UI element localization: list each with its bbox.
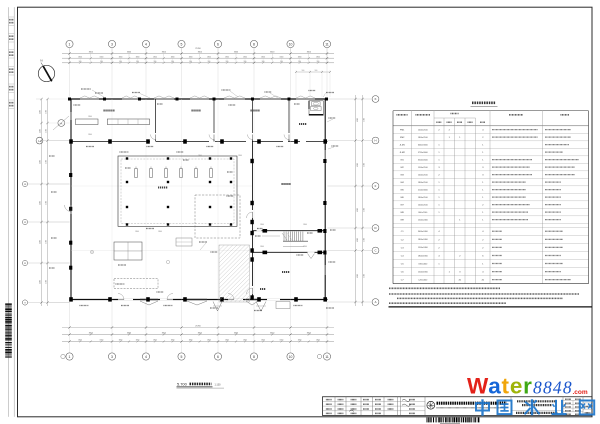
svg-text:1800x2100: 1800x2100	[418, 137, 429, 139]
svg-text:3600: 3600	[234, 52, 238, 54]
svg-text:1800: 1800	[207, 340, 211, 342]
svg-text:900: 900	[262, 61, 265, 63]
svg-text:3600: 3600	[198, 333, 202, 335]
svg-text:10: 10	[289, 355, 293, 359]
svg-text:5: 5	[181, 42, 183, 46]
svg-text:1800: 1800	[261, 56, 265, 58]
svg-text:A: A	[375, 300, 377, 304]
svg-text:1800: 1800	[88, 116, 92, 118]
svg-text:1800x2100: 1800x2100	[418, 197, 429, 199]
svg-text:1800: 1800	[78, 340, 82, 342]
svg-text:3600: 3600	[127, 52, 131, 54]
svg-text:1800: 1800	[260, 246, 264, 248]
svg-text:25700: 25700	[195, 326, 201, 328]
svg-text:3600: 3600	[89, 333, 93, 335]
svg-text:1800: 1800	[225, 56, 229, 58]
svg-text:2100: 2100	[45, 280, 47, 284]
svg-text:4: 4	[145, 42, 147, 46]
svg-text:2100: 2100	[45, 129, 47, 133]
svg-text:5: 5	[181, 355, 183, 359]
svg-text:4200: 4200	[39, 129, 41, 133]
svg-text:3600: 3600	[198, 52, 202, 54]
svg-text:3600: 3600	[162, 52, 166, 54]
svg-text:1800: 1800	[225, 340, 229, 342]
svg-text:1800x600: 1800x600	[418, 263, 428, 265]
svg-text:3500x4500: 3500x4500	[418, 159, 429, 161]
svg-text:1800: 1800	[171, 56, 175, 58]
svg-text:1800: 1800	[316, 56, 320, 58]
svg-text:4200: 4200	[357, 238, 359, 242]
svg-text:.com: .com	[573, 389, 588, 396]
svg-text:900: 900	[154, 61, 157, 63]
svg-text:1800: 1800	[243, 340, 247, 342]
svg-text:1500x1800: 1500x1800	[418, 271, 429, 273]
svg-text:1800: 1800	[280, 56, 284, 58]
svg-text:900: 900	[317, 61, 320, 63]
svg-text:1800: 1800	[298, 56, 302, 58]
svg-text:1800x1800: 1800x1800	[418, 255, 429, 257]
svg-text:1800x2400: 1800x2400	[418, 239, 429, 241]
svg-text:4200: 4200	[39, 201, 41, 205]
svg-text:Water: Water	[467, 374, 533, 399]
svg-text:1800: 1800	[153, 340, 157, 342]
svg-text:1500x2400: 1500x2400	[418, 247, 429, 249]
svg-text:5730x3000: 5730x3000	[418, 152, 429, 154]
svg-text:1800: 1800	[88, 134, 92, 136]
svg-text:1800: 1800	[261, 340, 265, 342]
svg-text:2100: 2100	[364, 208, 366, 212]
svg-text:3600: 3600	[127, 333, 131, 335]
svg-text:1800: 1800	[158, 231, 162, 233]
svg-text:1200x600: 1200x600	[418, 279, 428, 281]
svg-text:3600x2400: 3600x2400	[418, 231, 429, 233]
svg-text:1800: 1800	[303, 224, 307, 226]
svg-text:8848: 8848	[533, 378, 573, 398]
svg-text:3: 3	[111, 355, 113, 359]
svg-text:3: 3	[111, 42, 113, 46]
svg-text:900: 900	[315, 70, 318, 72]
svg-text:4200: 4200	[357, 163, 359, 167]
svg-text:1800: 1800	[189, 340, 193, 342]
svg-text:1800: 1800	[316, 340, 320, 342]
svg-text:1800: 1800	[198, 155, 202, 157]
svg-text:1800: 1800	[136, 340, 140, 342]
svg-text:4200: 4200	[39, 110, 41, 114]
svg-text:3600: 3600	[162, 333, 166, 335]
svg-text:1800: 1800	[260, 224, 264, 226]
svg-text:N: N	[40, 59, 42, 63]
svg-text:800x2100: 800x2100	[418, 212, 428, 214]
svg-text:1:100: 1:100	[215, 383, 222, 386]
svg-text:F: F	[375, 184, 377, 188]
svg-text:1000x2100: 1000x2100	[418, 204, 429, 206]
svg-text:4200: 4200	[357, 208, 359, 212]
svg-text:1800: 1800	[303, 246, 307, 248]
svg-text:1800: 1800	[298, 340, 302, 342]
svg-text:4200: 4200	[39, 240, 41, 244]
svg-text:1800x2100: 1800x2100	[418, 182, 429, 184]
svg-text:2100: 2100	[45, 240, 47, 244]
svg-text:H: H	[38, 139, 40, 143]
svg-text:1800: 1800	[136, 56, 140, 58]
svg-text:1800: 1800	[119, 340, 123, 342]
svg-text:3600: 3600	[307, 333, 311, 335]
svg-text:1800: 1800	[238, 155, 242, 157]
svg-text:900: 900	[302, 70, 305, 72]
svg-text:10: 10	[289, 42, 293, 46]
svg-text:1800: 1800	[153, 56, 157, 58]
svg-text:6: 6	[217, 42, 219, 46]
svg-text:900: 900	[298, 61, 301, 63]
svg-text:2100x3000: 2100x3000	[418, 189, 429, 191]
svg-text:4: 4	[145, 355, 147, 359]
svg-text:2100: 2100	[364, 118, 366, 122]
svg-text:3600: 3600	[270, 333, 274, 335]
svg-text:3600: 3600	[307, 52, 311, 54]
svg-text:1800: 1800	[207, 56, 211, 58]
svg-text:4200: 4200	[39, 160, 41, 164]
svg-text:1: 1	[69, 355, 71, 359]
svg-text:2100: 2100	[364, 238, 366, 242]
svg-text:900: 900	[79, 61, 82, 63]
svg-text:JLM1: JLM1	[400, 145, 406, 147]
svg-text:11: 11	[325, 355, 329, 359]
svg-text:4200: 4200	[39, 280, 41, 284]
svg-text:900: 900	[136, 61, 139, 63]
svg-text:2100: 2100	[364, 163, 366, 167]
svg-text:1000x2100: 1000x2100	[418, 129, 429, 131]
svg-text:1800: 1800	[119, 56, 123, 58]
svg-text:2100: 2100	[45, 160, 47, 164]
svg-text:H: H	[374, 139, 376, 143]
svg-text:900: 900	[208, 61, 211, 63]
svg-text:D: D	[374, 226, 376, 230]
svg-text:900: 900	[226, 61, 229, 63]
svg-text:2100: 2100	[45, 201, 47, 205]
svg-text:2100: 2100	[364, 274, 366, 278]
svg-text:1800: 1800	[171, 340, 175, 342]
svg-text:900: 900	[244, 61, 247, 63]
svg-text:1000x2100: 1000x2100	[418, 174, 429, 176]
svg-text:1500x2400: 1500x2400	[418, 219, 429, 221]
svg-text:1800: 1800	[78, 56, 82, 58]
svg-text:1800: 1800	[280, 340, 284, 342]
svg-text:3600: 3600	[270, 52, 274, 54]
svg-text:900: 900	[119, 61, 122, 63]
svg-text:1500x2100: 1500x2100	[418, 167, 429, 169]
svg-text:11: 11	[325, 42, 329, 46]
svg-text:C: C	[374, 249, 376, 253]
svg-text:1800: 1800	[100, 56, 104, 58]
svg-text:900: 900	[280, 61, 283, 63]
svg-text:3600: 3600	[234, 333, 238, 335]
svg-text:1800: 1800	[100, 340, 104, 342]
svg-text:1800: 1800	[135, 231, 139, 233]
svg-text:3600: 3600	[89, 52, 93, 54]
svg-text:8: 8	[253, 42, 255, 46]
svg-text:6040x3000: 6040x3000	[418, 144, 429, 146]
svg-text:4200: 4200	[357, 274, 359, 278]
svg-text:JLM2: JLM2	[400, 152, 406, 154]
svg-text:6: 6	[217, 355, 219, 359]
svg-text:1800: 1800	[189, 56, 193, 58]
svg-text:8: 8	[253, 355, 255, 359]
svg-text:25700: 25700	[195, 48, 201, 50]
svg-text:1800: 1800	[243, 56, 247, 58]
svg-text:900: 900	[171, 61, 174, 63]
svg-text:K: K	[375, 97, 377, 101]
svg-text:900: 900	[100, 61, 103, 63]
svg-text:4200: 4200	[357, 118, 359, 122]
svg-text:5.700: 5.700	[177, 381, 188, 386]
svg-text:2100: 2100	[45, 110, 47, 114]
svg-text:1: 1	[69, 42, 71, 46]
svg-text:900: 900	[189, 61, 192, 63]
